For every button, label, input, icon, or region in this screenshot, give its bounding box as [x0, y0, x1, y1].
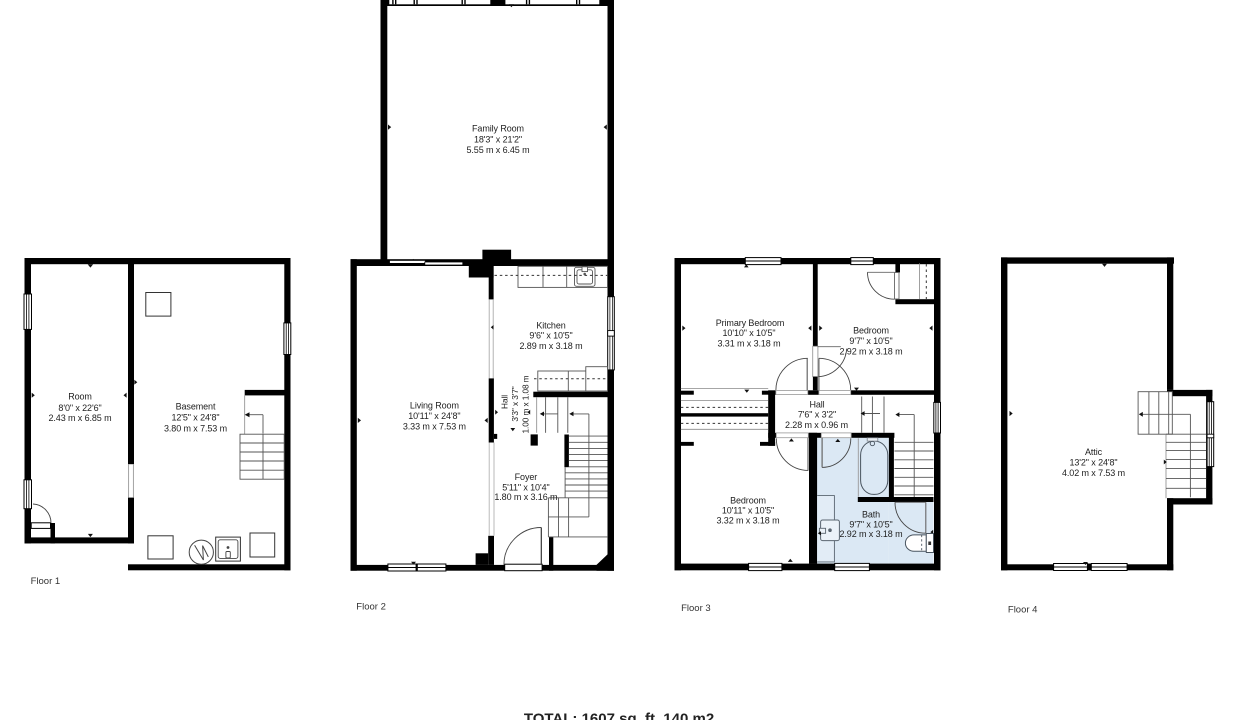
svg-text:10'10" x 10'5": 10'10" x 10'5" [723, 328, 776, 338]
svg-text:8'0" x 22'6": 8'0" x 22'6" [58, 403, 101, 413]
svg-text:2.92 m x 3.18 m: 2.92 m x 3.18 m [839, 346, 902, 356]
svg-text:18'3" x 21'2": 18'3" x 21'2" [474, 134, 522, 144]
svg-text:Bedroom: Bedroom [730, 496, 766, 506]
svg-text:Hall: Hall [500, 395, 510, 409]
svg-text:Bath: Bath [862, 510, 880, 520]
svg-text:1.80 m x 3.16 m: 1.80 m x 3.16 m [494, 492, 557, 502]
svg-text:2.43 m x 6.85 m: 2.43 m x 6.85 m [48, 413, 111, 423]
svg-text:9'7" x 10'5": 9'7" x 10'5" [849, 520, 892, 530]
svg-text:3.32 m x 3.18 m: 3.32 m x 3.18 m [716, 516, 779, 526]
svg-text:Family Room: Family Room [472, 123, 524, 133]
svg-text:4.02 m x 7.53 m: 4.02 m x 7.53 m [1062, 468, 1125, 478]
svg-text:Primary Bedroom: Primary Bedroom [716, 318, 785, 328]
svg-text:Bedroom: Bedroom [853, 325, 889, 335]
svg-text:12'5" x 24'8": 12'5" x 24'8" [171, 413, 219, 423]
svg-text:Living Room: Living Room [410, 401, 459, 411]
svg-text:3.31 m x 3.18 m: 3.31 m x 3.18 m [717, 338, 780, 348]
svg-text:3'3" x 3'7": 3'3" x 3'7" [510, 386, 520, 421]
svg-text:2.89 m x 3.18 m: 2.89 m x 3.18 m [519, 341, 582, 351]
svg-text:2.92 m x 3.18 m: 2.92 m x 3.18 m [839, 529, 902, 539]
svg-text:Foyer: Foyer [515, 472, 538, 482]
svg-text:7'6" x 3'2": 7'6" x 3'2" [798, 410, 836, 420]
svg-text:5'11" x 10'4": 5'11" x 10'4" [502, 482, 549, 492]
svg-text:Hall: Hall [809, 399, 824, 409]
svg-text:13'2" x 24'8": 13'2" x 24'8" [1069, 457, 1117, 467]
svg-text:9'7" x 10'5": 9'7" x 10'5" [849, 336, 892, 346]
svg-text:Floor 1: Floor 1 [31, 576, 61, 587]
svg-text:10'11" x 24'8": 10'11" x 24'8" [408, 411, 460, 421]
svg-text:Attic: Attic [1085, 447, 1103, 457]
svg-text:TOTAL: 1607 sq. ft, 140 m2: TOTAL: 1607 sq. ft, 140 m2 [524, 711, 714, 720]
svg-text:Floor 4: Floor 4 [1008, 605, 1038, 616]
svg-text:Floor 3: Floor 3 [681, 603, 711, 614]
svg-text:Basement: Basement [176, 402, 216, 412]
svg-text:2.28 m x 0.96 m: 2.28 m x 0.96 m [785, 420, 848, 430]
svg-text:Room: Room [68, 391, 92, 401]
svg-text:5.55 m x 6.45 m: 5.55 m x 6.45 m [466, 145, 529, 155]
svg-text:1.00 m x 1.08 m: 1.00 m x 1.08 m [520, 375, 530, 433]
svg-text:Kitchen: Kitchen [536, 320, 565, 330]
svg-text:3.80 m x 7.53 m: 3.80 m x 7.53 m [164, 424, 227, 434]
svg-text:3.33 m x 7.53 m: 3.33 m x 7.53 m [403, 421, 466, 431]
svg-text:9'6" x 10'5": 9'6" x 10'5" [529, 331, 572, 341]
svg-text:10'11" x 10'5": 10'11" x 10'5" [722, 506, 774, 516]
svg-text:Floor 2: Floor 2 [356, 602, 386, 613]
